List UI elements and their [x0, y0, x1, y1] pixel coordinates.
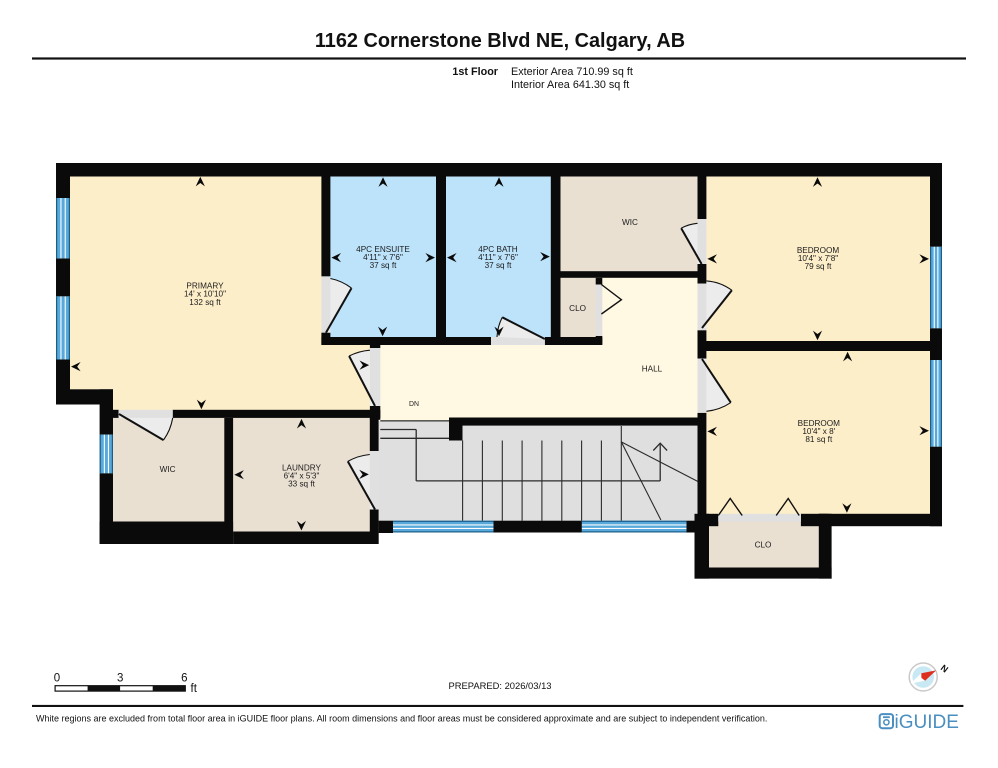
- svg-text:33 sq ft: 33 sq ft: [288, 480, 316, 489]
- svg-text:37 sq ft: 37 sq ft: [370, 261, 398, 270]
- svg-text:6: 6: [181, 673, 187, 685]
- svg-text:Exterior Area 710.99 sq ft: Exterior Area 710.99 sq ft: [511, 66, 633, 78]
- svg-text:79 sq ft: 79 sq ft: [805, 262, 833, 271]
- svg-text:1162 Cornerstone Blvd NE, Calg: 1162 Cornerstone Blvd NE, Calgary, AB: [315, 30, 685, 52]
- svg-text:3: 3: [117, 673, 123, 685]
- svg-text:CLO: CLO: [569, 304, 586, 313]
- svg-text:81 sq ft: 81 sq ft: [805, 435, 833, 444]
- svg-text:WIC: WIC: [622, 218, 638, 227]
- svg-text:ft: ft: [191, 683, 198, 695]
- svg-text:iGUIDE: iGUIDE: [895, 712, 959, 733]
- svg-text:WIC: WIC: [160, 465, 176, 474]
- svg-text:HALL: HALL: [642, 364, 663, 373]
- svg-text:White regions are excluded fro: White regions are excluded from total fl…: [36, 714, 767, 724]
- svg-text:Interior Area 641.30 sq ft: Interior Area 641.30 sq ft: [511, 79, 629, 91]
- svg-text:DN: DN: [409, 401, 419, 408]
- svg-text:CLO: CLO: [755, 540, 772, 549]
- svg-text:0: 0: [54, 673, 60, 685]
- svg-text:1st Floor: 1st Floor: [452, 66, 498, 78]
- svg-text:37 sq ft: 37 sq ft: [485, 261, 513, 270]
- svg-text:PREPARED: 2026/03/13: PREPARED: 2026/03/13: [448, 680, 551, 691]
- svg-text:132 sq ft: 132 sq ft: [189, 298, 221, 307]
